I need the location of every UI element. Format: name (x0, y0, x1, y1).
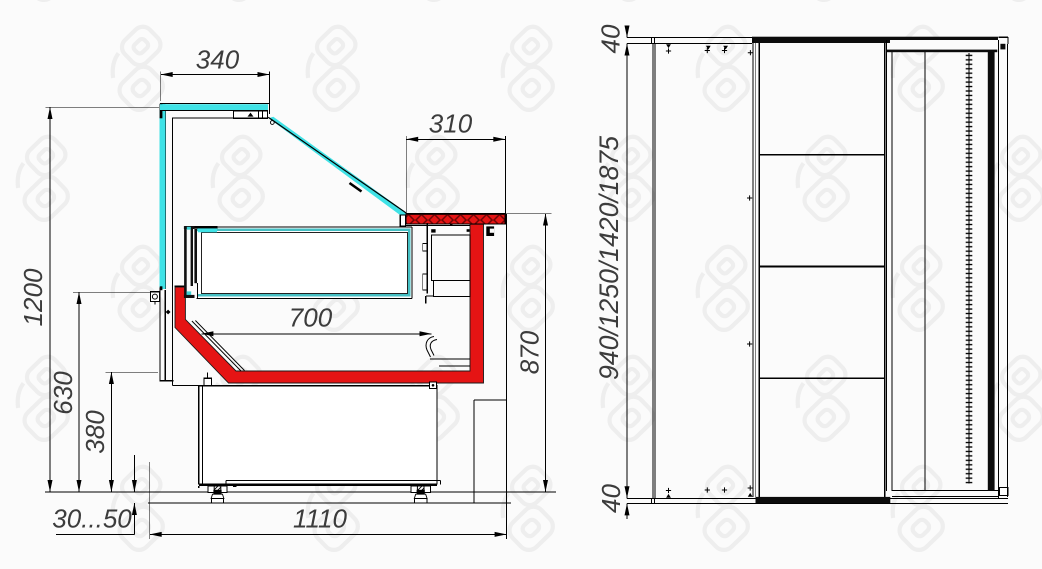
svg-text:870: 870 (515, 330, 545, 374)
svg-text:1200: 1200 (18, 268, 48, 326)
svg-text:380: 380 (80, 410, 110, 454)
svg-text:310: 310 (429, 109, 473, 139)
svg-text:700: 700 (289, 303, 333, 333)
svg-text:630: 630 (48, 371, 78, 415)
svg-text:40: 40 (596, 24, 626, 53)
svg-text:30...50: 30...50 (52, 504, 132, 534)
svg-text:1110: 1110 (293, 504, 348, 534)
svg-text:340: 340 (196, 45, 240, 75)
svg-text:940/1250/1420/1875: 940/1250/1420/1875 (594, 136, 624, 380)
svg-text:40: 40 (596, 484, 626, 513)
